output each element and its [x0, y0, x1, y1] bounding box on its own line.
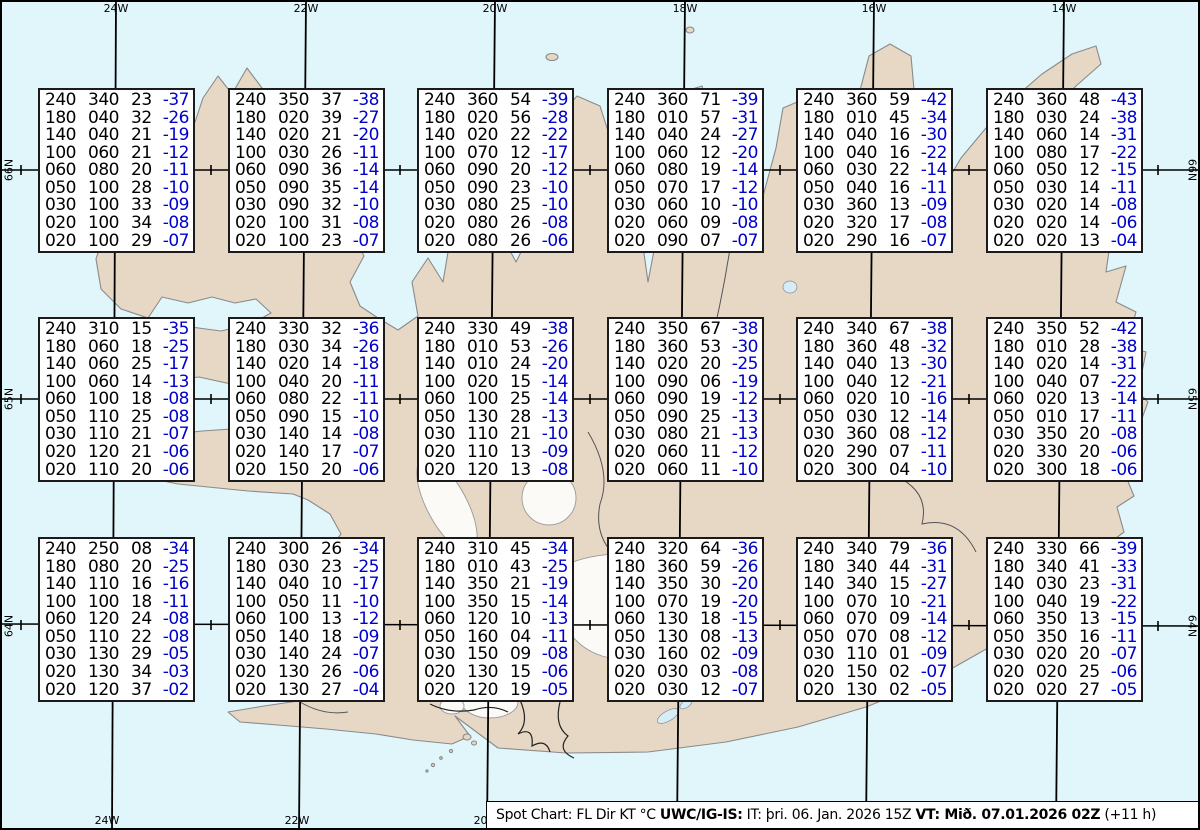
spot-box: 24033032-3618003034-2614002014-181000402…	[228, 317, 385, 482]
legend-text-segment: Spot Chart: FL Dir KT °C	[496, 807, 660, 823]
wind-dir-value: 350	[278, 92, 321, 109]
fl-value: 240	[45, 92, 88, 109]
fl-value: 020	[45, 215, 88, 232]
spot-row: 24033032-36	[235, 321, 379, 338]
fl-value: 020	[614, 664, 657, 681]
wind-speed-value: 20	[1079, 444, 1109, 461]
temperature-value: -38	[540, 321, 568, 338]
temperature-value: -22	[540, 127, 568, 144]
wind-dir-value: 020	[1036, 215, 1079, 232]
wind-speed-value: 21	[131, 444, 161, 461]
temperature-value: -06	[1109, 664, 1137, 681]
wind-speed-value: 08	[131, 541, 161, 558]
wind-dir-value: 330	[1036, 541, 1079, 558]
wind-dir-value: 140	[278, 444, 321, 461]
wind-dir-value: 130	[278, 682, 321, 699]
legend-text-segment: IT: þri. 06. Jan. 2026 15Z	[743, 807, 916, 823]
wind-dir-value: 120	[88, 682, 131, 699]
spot-box: 24034079-3618034044-3114034015-271000701…	[796, 537, 953, 702]
spot-row: 24034067-38	[803, 321, 947, 338]
spot-box: 24025008-3418008020-2514011016-161001001…	[38, 537, 195, 702]
temperature-value: -08	[730, 215, 758, 232]
spot-row: 02030004-10	[803, 462, 947, 479]
meridian-label-top: 22W	[294, 3, 319, 14]
legend-text-segment: VT: Mið. 07.01.2026 02Z	[915, 807, 1100, 823]
spot-row: 14004010-17	[235, 576, 379, 593]
wind-speed-value: 67	[889, 321, 919, 338]
wind-speed-value: 23	[131, 92, 161, 109]
wind-dir-value: 300	[278, 541, 321, 558]
spot-row: 24036059-42	[803, 92, 947, 109]
fl-value: 240	[614, 92, 657, 109]
wind-dir-value: 340	[88, 92, 131, 109]
fl-value: 240	[235, 321, 278, 338]
wind-dir-value: 290	[846, 233, 889, 250]
wind-speed-value: 30	[700, 576, 730, 593]
spot-row: 14004024-27	[614, 127, 758, 144]
temperature-value: -43	[1109, 92, 1137, 109]
spot-row: 02032017-08	[803, 215, 947, 232]
wind-speed-value: 23	[1079, 576, 1109, 593]
spot-row: 24032064-36	[614, 541, 758, 558]
wind-speed-value: 27	[321, 682, 351, 699]
fl-value: 240	[424, 92, 467, 109]
fl-value: 140	[424, 127, 467, 144]
wind-speed-value: 26	[321, 664, 351, 681]
fl-value: 020	[235, 444, 278, 461]
wind-speed-value: 13	[1079, 233, 1109, 250]
fl-value: 020	[803, 664, 846, 681]
parallel-label-left: 64N	[4, 615, 15, 637]
spot-row: 14035021-19	[424, 576, 568, 593]
temperature-value: -38	[919, 321, 947, 338]
wind-dir-value: 310	[467, 541, 510, 558]
parallel-label-right: 65N	[1187, 388, 1198, 410]
wind-speed-value: 21	[131, 127, 161, 144]
wind-dir-value: 100	[278, 215, 321, 232]
fl-value: 020	[424, 664, 467, 681]
wind-dir-value: 080	[467, 215, 510, 232]
spot-row: 02003003-08	[614, 664, 758, 681]
spot-row: 14006025-17	[45, 356, 189, 373]
spot-row: 14035030-20	[614, 576, 758, 593]
wind-speed-value: 18	[1079, 462, 1109, 479]
fl-value: 240	[803, 541, 846, 558]
spot-box: 24031015-3518006018-2514006025-171000601…	[38, 317, 195, 482]
temperature-value: -18	[351, 356, 379, 373]
wind-dir-value: 100	[88, 215, 131, 232]
spot-row: 02012019-05	[424, 682, 568, 699]
temperature-value: -05	[540, 682, 568, 699]
spot-row: 02012021-06	[45, 444, 189, 461]
wind-speed-value: 13	[889, 356, 919, 373]
spot-row: 02010029-07	[45, 233, 189, 250]
fl-value: 020	[803, 444, 846, 461]
legend-text-segment: UWC/IG-IS:	[660, 807, 743, 823]
fl-value: 140	[614, 127, 657, 144]
fl-value: 140	[614, 576, 657, 593]
spot-row: 02006011-12	[614, 444, 758, 461]
fl-value: 140	[424, 356, 467, 373]
wind-dir-value: 130	[846, 682, 889, 699]
fl-value: 140	[235, 576, 278, 593]
spot-row: 02011013-09	[424, 444, 568, 461]
fl-value: 240	[424, 541, 467, 558]
temperature-value: -03	[161, 664, 189, 681]
wind-speed-value: 17	[889, 215, 919, 232]
temperature-value: -07	[161, 233, 189, 250]
temperature-value: -06	[1109, 462, 1137, 479]
temperature-value: -20	[730, 576, 758, 593]
wind-speed-value: 13	[510, 444, 540, 461]
wind-dir-value: 040	[846, 127, 889, 144]
fl-value: 140	[614, 356, 657, 373]
wind-dir-value: 120	[467, 462, 510, 479]
spot-row: 24034079-36	[803, 541, 947, 558]
fl-value: 020	[803, 215, 846, 232]
wind-dir-value: 110	[467, 444, 510, 461]
spot-box: 24034067-3818036048-3214004013-301000401…	[796, 317, 953, 482]
fl-value: 140	[993, 356, 1036, 373]
spot-row: 24033049-38	[424, 321, 568, 338]
temperature-value: -27	[919, 576, 947, 593]
temperature-value: -12	[730, 444, 758, 461]
temperature-value: -10	[730, 462, 758, 479]
temperature-value: -31	[1109, 356, 1137, 373]
fl-value: 140	[803, 356, 846, 373]
wind-speed-value: 27	[1079, 682, 1109, 699]
temperature-value: -38	[351, 92, 379, 109]
wind-speed-value: 26	[321, 541, 351, 558]
temperature-value: -36	[351, 321, 379, 338]
wind-dir-value: 020	[1036, 356, 1079, 373]
fl-value: 240	[993, 321, 1036, 338]
wind-dir-value: 360	[657, 92, 700, 109]
fl-value: 020	[424, 215, 467, 232]
wind-dir-value: 130	[278, 664, 321, 681]
wind-speed-value: 09	[700, 215, 730, 232]
wind-speed-value: 31	[321, 215, 351, 232]
wind-speed-value: 21	[510, 576, 540, 593]
spot-row: 02012013-08	[424, 462, 568, 479]
temperature-value: -06	[1109, 215, 1137, 232]
spot-row: 02009007-07	[614, 233, 758, 250]
spot-row: 02013015-06	[424, 664, 568, 681]
wind-dir-value: 030	[1036, 576, 1079, 593]
spot-row: 02010034-08	[45, 215, 189, 232]
wind-dir-value: 340	[846, 321, 889, 338]
temperature-value: -20	[540, 356, 568, 373]
fl-value: 140	[993, 576, 1036, 593]
temperature-value: -36	[730, 541, 758, 558]
spot-row: 02013034-03	[45, 664, 189, 681]
wind-dir-value: 250	[88, 541, 131, 558]
fl-value: 140	[803, 576, 846, 593]
wind-dir-value: 030	[657, 682, 700, 699]
spot-box: 24036054-3918002056-2814002022-221000701…	[417, 88, 574, 253]
spot-box: 24036071-3918001057-3114004024-271000601…	[607, 88, 764, 253]
wind-dir-value: 060	[657, 444, 700, 461]
wind-dir-value: 020	[1036, 682, 1079, 699]
wind-dir-value: 100	[278, 233, 321, 250]
spot-row: 02008026-06	[424, 233, 568, 250]
wind-speed-value: 15	[889, 576, 919, 593]
wind-dir-value: 130	[88, 664, 131, 681]
wind-speed-value: 24	[510, 356, 540, 373]
spot-row: 02029007-11	[803, 444, 947, 461]
wind-speed-value: 37	[131, 682, 161, 699]
wind-dir-value: 120	[88, 444, 131, 461]
temperature-value: -31	[1109, 576, 1137, 593]
wind-dir-value: 020	[1036, 664, 1079, 681]
temperature-value: -31	[1109, 127, 1137, 144]
wind-speed-value: 19	[510, 682, 540, 699]
wind-speed-value: 14	[321, 356, 351, 373]
spot-row: 24036071-39	[614, 92, 758, 109]
fl-value: 240	[235, 92, 278, 109]
temperature-value: -39	[1109, 541, 1137, 558]
wind-dir-value: 150	[846, 664, 889, 681]
temperature-value: -34	[540, 541, 568, 558]
fl-value: 020	[235, 462, 278, 479]
spot-box: 24036059-4218001045-3414004016-301000401…	[796, 88, 953, 253]
temperature-value: -08	[161, 215, 189, 232]
legend-text-segment: (+11 h)	[1100, 807, 1156, 823]
temperature-value: -36	[919, 541, 947, 558]
fl-value: 140	[235, 356, 278, 373]
fl-value: 140	[45, 127, 88, 144]
fl-value: 020	[614, 233, 657, 250]
spot-row: 02010023-07	[235, 233, 379, 250]
wind-dir-value: 120	[467, 682, 510, 699]
wind-dir-value: 360	[467, 92, 510, 109]
spot-row: 14004016-30	[803, 127, 947, 144]
temperature-value: -07	[919, 664, 947, 681]
wind-speed-value: 02	[889, 682, 919, 699]
spot-row: 02033020-06	[993, 444, 1137, 461]
spot-row: 24030026-34	[235, 541, 379, 558]
temperature-value: -07	[919, 233, 947, 250]
temperature-value: -07	[351, 233, 379, 250]
spot-box: 24030026-3418003023-2514004010-171000501…	[228, 537, 385, 702]
temperature-value: -06	[351, 462, 379, 479]
wind-dir-value: 320	[846, 215, 889, 232]
parallel-label-left: 65N	[4, 388, 15, 410]
spot-row: 02013026-06	[235, 664, 379, 681]
spot-row: 02003012-07	[614, 682, 758, 699]
temperature-value: -19	[161, 127, 189, 144]
wind-speed-value: 12	[700, 682, 730, 699]
spot-row: 02010031-08	[235, 215, 379, 232]
spot-row: 24035037-38	[235, 92, 379, 109]
spot-row: 14002021-20	[235, 127, 379, 144]
wind-speed-value: 67	[700, 321, 730, 338]
fl-value: 240	[614, 321, 657, 338]
fl-value: 020	[614, 215, 657, 232]
fl-value: 020	[45, 664, 88, 681]
wind-dir-value: 090	[657, 233, 700, 250]
temperature-value: -25	[730, 356, 758, 373]
fl-value: 020	[45, 233, 88, 250]
temperature-value: -06	[351, 664, 379, 681]
wind-speed-value: 10	[321, 576, 351, 593]
fl-value: 240	[235, 541, 278, 558]
wind-dir-value: 040	[657, 127, 700, 144]
spot-box: 24031045-3418001043-2514035021-191003501…	[417, 537, 574, 702]
fl-value: 020	[803, 462, 846, 479]
wind-dir-value: 300	[846, 462, 889, 479]
fl-value: 020	[993, 444, 1036, 461]
wind-speed-value: 15	[510, 664, 540, 681]
temperature-value: -20	[351, 127, 379, 144]
temperature-value: -04	[351, 682, 379, 699]
spot-box: 24034023-3718004032-2614004021-191000602…	[38, 88, 195, 253]
wind-speed-value: 23	[321, 233, 351, 250]
spot-box: 24032064-3618036059-2614035030-201000701…	[607, 537, 764, 702]
temperature-value: -02	[161, 682, 189, 699]
wind-speed-value: 32	[321, 321, 351, 338]
wind-dir-value: 330	[1036, 444, 1079, 461]
fl-value: 020	[235, 682, 278, 699]
fl-value: 020	[614, 462, 657, 479]
wind-dir-value: 020	[278, 356, 321, 373]
temperature-value: -06	[540, 233, 568, 250]
parallel-label-right: 64N	[1187, 615, 1198, 637]
spot-row: 24031015-35	[45, 321, 189, 338]
fl-value: 240	[993, 541, 1036, 558]
temperature-value: -30	[919, 356, 947, 373]
wind-speed-value: 25	[1079, 664, 1109, 681]
wind-dir-value: 080	[467, 233, 510, 250]
wind-dir-value: 060	[88, 356, 131, 373]
meridian-label-top: 16W	[862, 3, 887, 14]
spot-row: 24031045-34	[424, 541, 568, 558]
spot-row: 02008026-08	[424, 215, 568, 232]
spot-row: 14034015-27	[803, 576, 947, 593]
temperature-value: -30	[919, 127, 947, 144]
wind-speed-value: 25	[131, 356, 161, 373]
wind-dir-value: 360	[1036, 92, 1079, 109]
fl-value: 020	[235, 215, 278, 232]
fl-value: 240	[614, 541, 657, 558]
temperature-value: -08	[351, 215, 379, 232]
wind-speed-value: 34	[131, 664, 161, 681]
fl-value: 020	[45, 682, 88, 699]
wind-dir-value: 310	[88, 321, 131, 338]
spot-row: 02002027-05	[993, 682, 1137, 699]
wind-dir-value: 350	[467, 576, 510, 593]
meridian-label-top: 18W	[673, 3, 698, 14]
fl-value: 020	[993, 462, 1036, 479]
spot-row: 02011020-06	[45, 462, 189, 479]
wind-speed-value: 14	[1079, 215, 1109, 232]
temperature-value: -04	[1109, 233, 1137, 250]
fl-value: 020	[993, 682, 1036, 699]
fl-value: 140	[993, 127, 1036, 144]
spot-row: 02030018-06	[993, 462, 1137, 479]
temperature-value: -42	[1109, 321, 1137, 338]
wind-dir-value: 360	[846, 92, 889, 109]
spot-row: 24036054-39	[424, 92, 568, 109]
wind-dir-value: 040	[846, 356, 889, 373]
wind-dir-value: 010	[467, 356, 510, 373]
wind-dir-value: 350	[1036, 321, 1079, 338]
temperature-value: -11	[919, 444, 947, 461]
wind-speed-value: 66	[1079, 541, 1109, 558]
temperature-value: -39	[540, 92, 568, 109]
wind-speed-value: 21	[321, 127, 351, 144]
fl-value: 240	[45, 321, 88, 338]
temperature-value: -38	[730, 321, 758, 338]
wind-speed-value: 20	[700, 356, 730, 373]
wind-dir-value: 020	[1036, 233, 1079, 250]
fl-value: 240	[803, 321, 846, 338]
wind-speed-value: 02	[889, 664, 919, 681]
temperature-value: -06	[540, 664, 568, 681]
temperature-value: -42	[919, 92, 947, 109]
wind-dir-value: 110	[88, 462, 131, 479]
spot-row: 02014017-07	[235, 444, 379, 461]
spot-box: 24033066-3918034041-3314003023-311000401…	[986, 537, 1143, 702]
wind-speed-value: 14	[1079, 127, 1109, 144]
wind-dir-value: 330	[278, 321, 321, 338]
wind-speed-value: 13	[510, 462, 540, 479]
wind-dir-value: 040	[88, 127, 131, 144]
fl-value: 020	[424, 233, 467, 250]
wind-dir-value: 060	[657, 215, 700, 232]
spot-box: 24035052-4218001028-3814002014-311000400…	[986, 317, 1143, 482]
fl-value: 020	[424, 444, 467, 461]
temperature-value: -35	[161, 321, 189, 338]
spot-row: 02013027-04	[235, 682, 379, 699]
temperature-value: -07	[351, 444, 379, 461]
spot-row: 02029016-07	[803, 233, 947, 250]
spot-row: 14011016-16	[45, 576, 189, 593]
fl-value: 240	[803, 92, 846, 109]
wind-speed-value: 64	[700, 541, 730, 558]
fl-value: 020	[45, 462, 88, 479]
spot-box: 24035067-3818036053-3014002020-251000900…	[607, 317, 764, 482]
wind-dir-value: 350	[657, 576, 700, 593]
spot-row: 02012037-02	[45, 682, 189, 699]
wind-speed-value: 16	[131, 576, 161, 593]
temperature-value: -07	[730, 233, 758, 250]
wind-dir-value: 020	[657, 356, 700, 373]
wind-speed-value: 45	[510, 541, 540, 558]
wind-speed-value: 11	[700, 444, 730, 461]
wind-speed-value: 34	[131, 215, 161, 232]
spot-row: 02013002-05	[803, 682, 947, 699]
spot-row: 14004013-30	[803, 356, 947, 373]
spot-row: 02006009-08	[614, 215, 758, 232]
wind-speed-value: 15	[131, 321, 161, 338]
meridian-label-top: 14W	[1052, 3, 1077, 14]
spot-row: 14004021-19	[45, 127, 189, 144]
wind-speed-value: 79	[889, 541, 919, 558]
spot-row: 14002020-25	[614, 356, 758, 373]
spot-chart-map: 24W24W22W22W20W20W18W16W14W66N66N65N65N6…	[0, 0, 1200, 830]
wind-dir-value: 030	[657, 664, 700, 681]
fl-value: 020	[993, 664, 1036, 681]
spot-row: 02002014-06	[993, 215, 1137, 232]
wind-speed-value: 22	[510, 127, 540, 144]
wind-dir-value: 330	[467, 321, 510, 338]
fl-value: 020	[993, 233, 1036, 250]
temperature-value: -37	[161, 92, 189, 109]
wind-speed-value: 20	[131, 462, 161, 479]
wind-speed-value: 48	[1079, 92, 1109, 109]
spot-row: 14002022-22	[424, 127, 568, 144]
